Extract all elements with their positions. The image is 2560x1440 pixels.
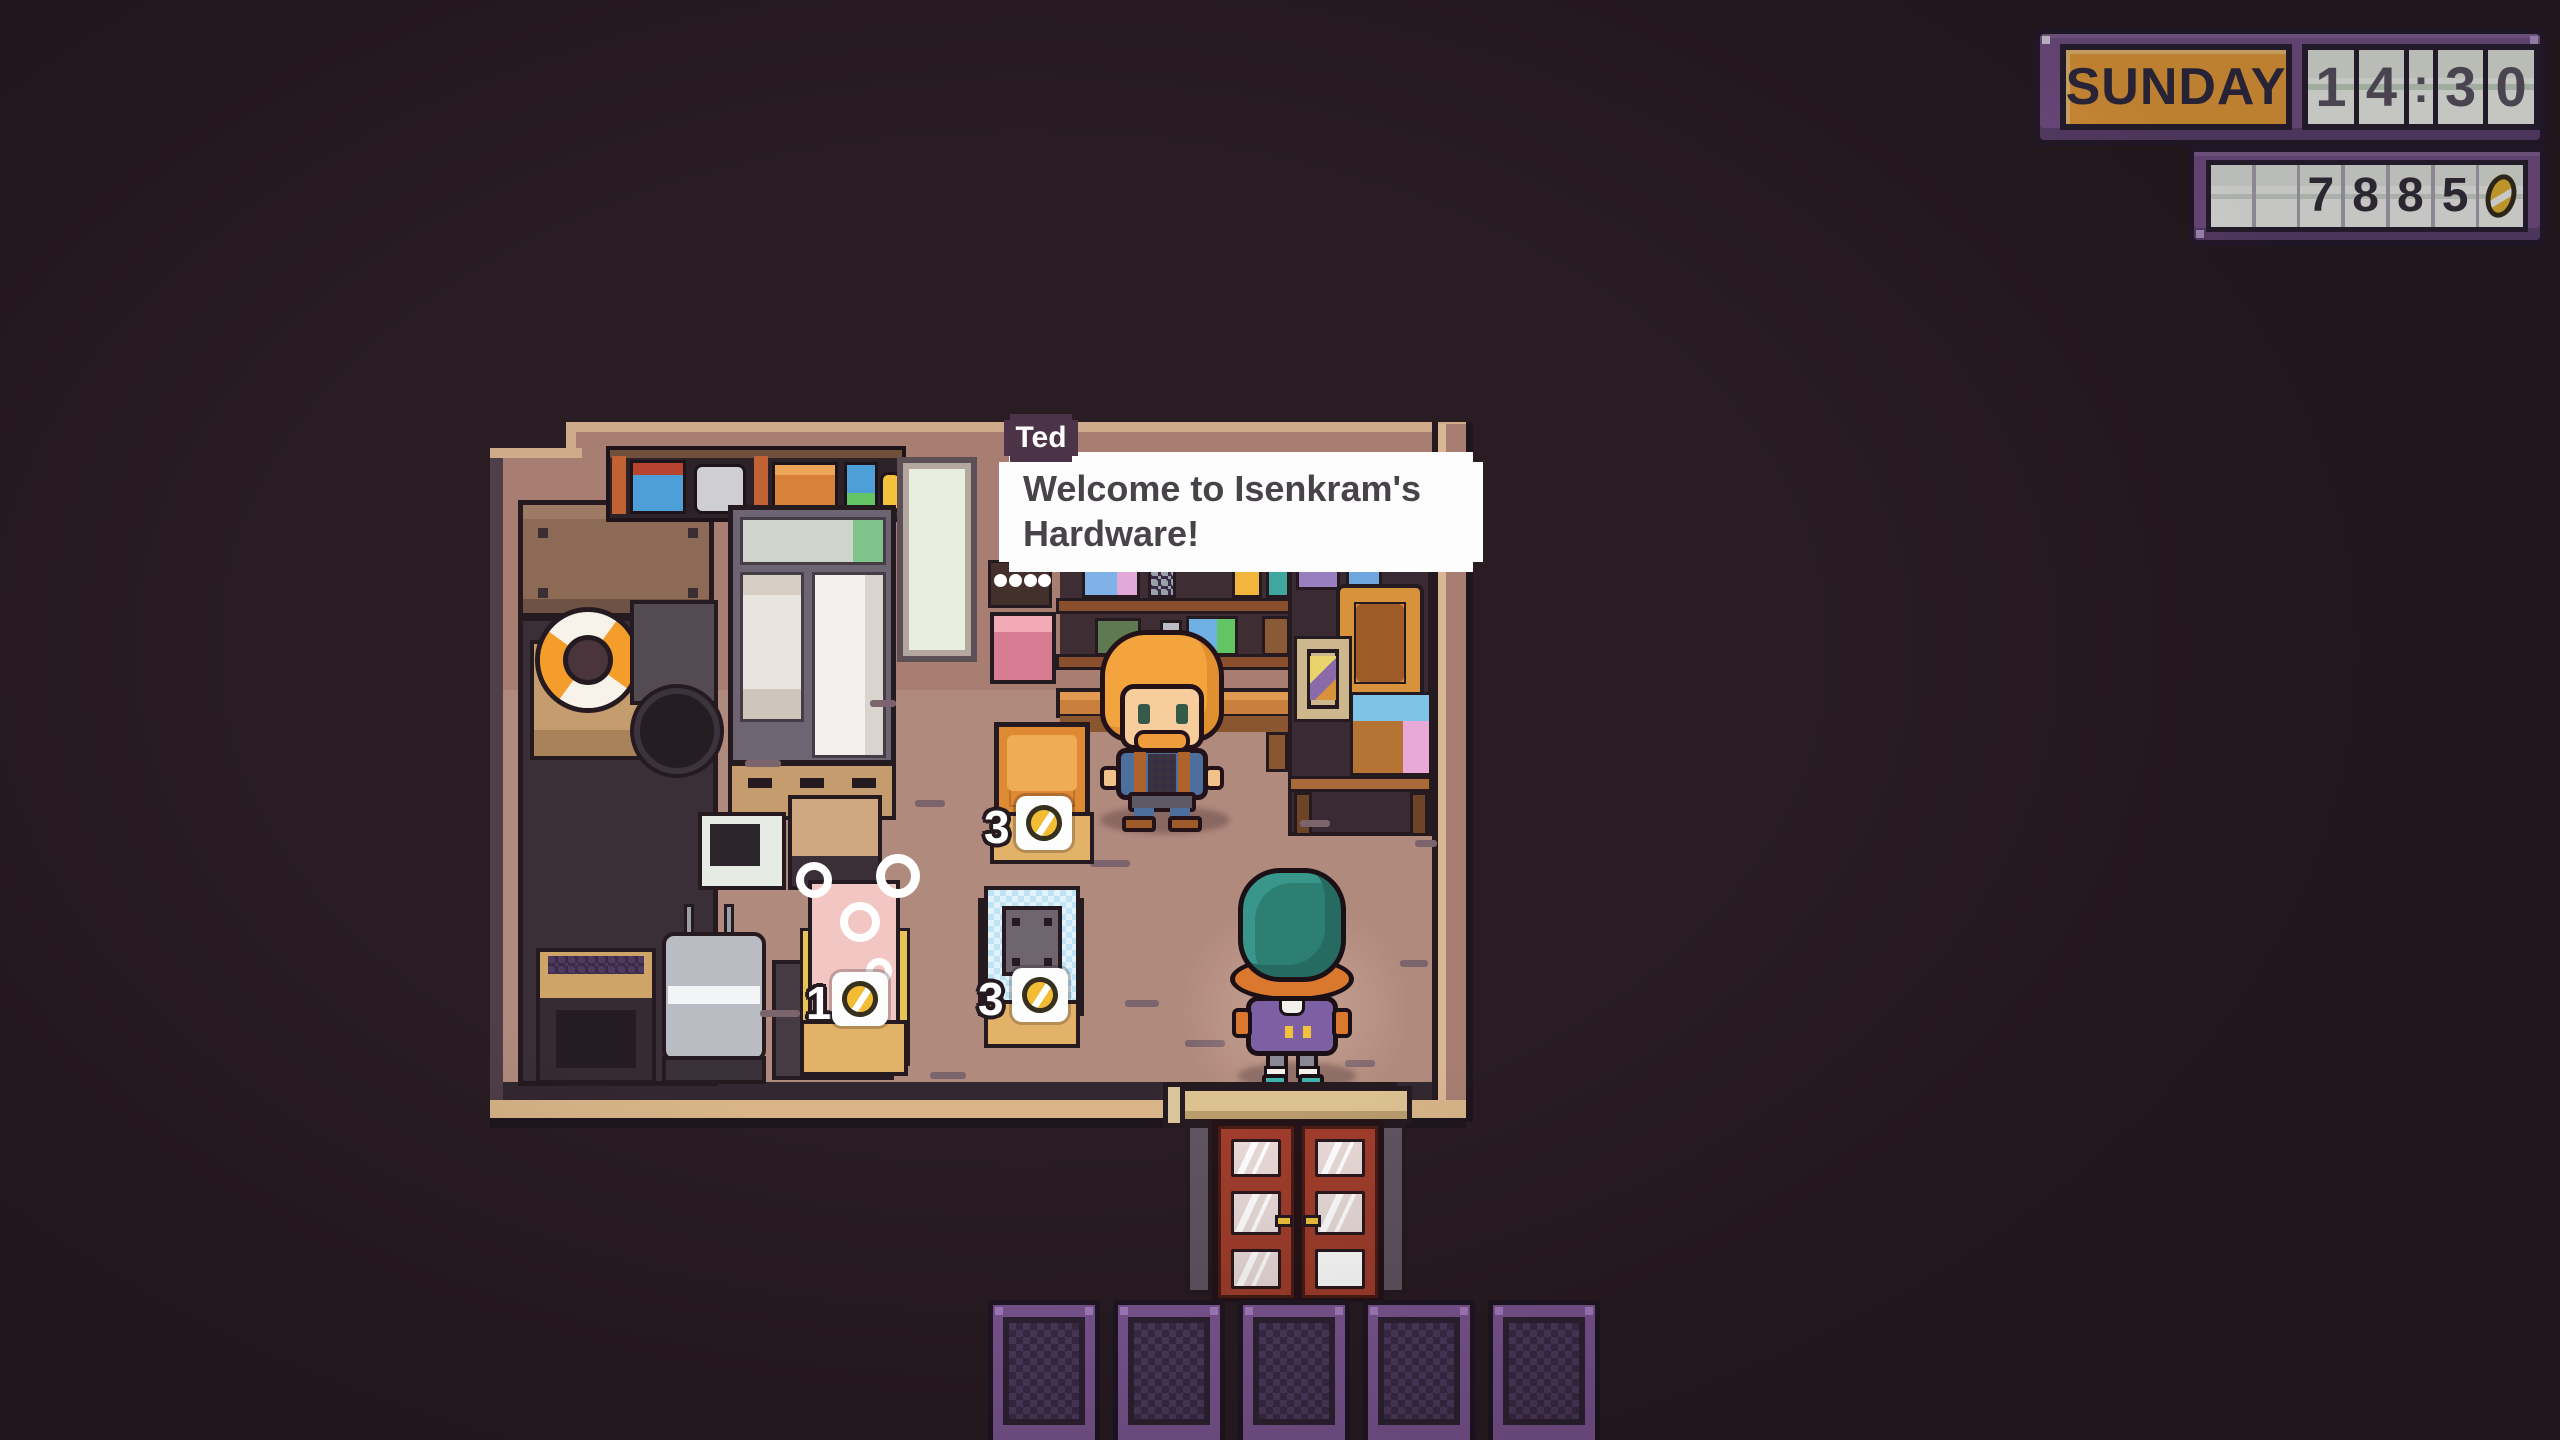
game-viewport: 3 1	[0, 0, 2560, 1440]
panel-corner-pixel	[2196, 230, 2204, 238]
money-digit-cell: 8	[2390, 165, 2431, 227]
time-digit-cell: 3	[2438, 50, 2484, 124]
coin-icon	[2481, 171, 2521, 221]
hud-money-panel: 7 8 8 5	[2188, 146, 2546, 246]
time-digit-cell: 0	[2488, 50, 2534, 124]
hud-day-time-panel: SUNDAY 1 4 : 3 0	[2034, 28, 2546, 146]
time-digit-cell: 1	[2308, 50, 2354, 124]
money-digit-cell	[2256, 165, 2297, 227]
money-digit-cell	[2211, 165, 2252, 227]
money-digit-cell: 8	[2345, 165, 2386, 227]
money-digit-cell: 5	[2435, 165, 2476, 227]
money-coin-cell	[2479, 165, 2523, 227]
money-display: 7 8 8 5	[2206, 160, 2528, 232]
time-digit-cell: 4	[2359, 50, 2405, 124]
day-display: SUNDAY	[2060, 44, 2292, 130]
time-display: 1 4 : 3 0	[2302, 44, 2540, 130]
panel-corner-pixel	[2042, 36, 2050, 44]
time-colon-cell: :	[2409, 50, 2433, 124]
panel-corner-pixel	[2530, 36, 2538, 44]
money-digit-cell: 7	[2300, 165, 2341, 227]
hud: SUNDAY 1 4 : 3 0 7 8	[0, 0, 2560, 1440]
